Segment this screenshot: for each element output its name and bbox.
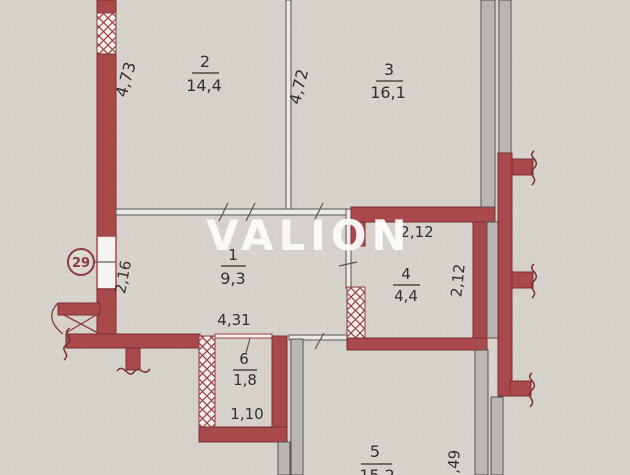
left-wall-top [97, 0, 116, 13]
room6-top-line [215, 334, 272, 338]
dim-hall-width: 4,31 [217, 311, 250, 329]
room4-right-wall [473, 222, 487, 350]
gray-wall-strip-d [475, 350, 488, 475]
left-wall-hatched-section [97, 13, 116, 54]
bottom-left-wall [66, 334, 200, 348]
corridor-stub-middle [512, 272, 533, 288]
marker-label: 29 [72, 256, 90, 271]
dim-room5-edge: ,49 [444, 449, 463, 474]
door-stub-wall [58, 303, 100, 315]
room6-bottom-wall [199, 427, 287, 442]
corridor-stub-top [512, 159, 533, 175]
lower-stub-wall [126, 348, 140, 370]
room2-room3-partition [286, 0, 291, 209]
room2-number: 2 [200, 52, 210, 71]
room5-number: 5 [370, 442, 380, 461]
room6-right-wall [272, 336, 287, 442]
room6-area: 1,8 [233, 371, 257, 389]
room4-left-hatched-wall [347, 287, 365, 338]
room6-number: 6 [239, 350, 249, 368]
room4-bottom-wall [347, 338, 487, 350]
floor-plan-photo: 29 2 14,4 3 16,1 1 9,3 4 4, [0, 0, 630, 475]
floor-plan-svg: 29 2 14,4 3 16,1 1 9,3 4 4, [0, 0, 630, 475]
room3-area: 16,1 [370, 83, 406, 102]
room6-left-hatched-wall [199, 336, 215, 428]
room2-area: 14,4 [186, 76, 222, 95]
room3-number: 3 [384, 60, 394, 79]
gray-wall-strip-b [499, 0, 511, 153]
room5-area: 15,2 [359, 466, 395, 475]
corridor-stub-bottom [510, 381, 531, 396]
corridor-right-wall [498, 153, 512, 396]
dim-room4-depth: 2,12 [447, 263, 468, 298]
room1-area: 9,3 [220, 269, 245, 288]
dim-room6-width: 1,10 [230, 405, 263, 423]
gray-wall-strip-c [487, 222, 498, 338]
gray-wall-strip-f [291, 339, 303, 475]
valion-watermark: VALION [206, 211, 411, 260]
room4-area: 4,4 [394, 287, 418, 305]
left-wall-middle [97, 54, 116, 236]
room4-number: 4 [401, 265, 411, 283]
gray-wall-strip-g [278, 442, 290, 475]
gray-wall-strip-a [481, 0, 495, 207]
gray-wall-strip-e [491, 397, 503, 475]
